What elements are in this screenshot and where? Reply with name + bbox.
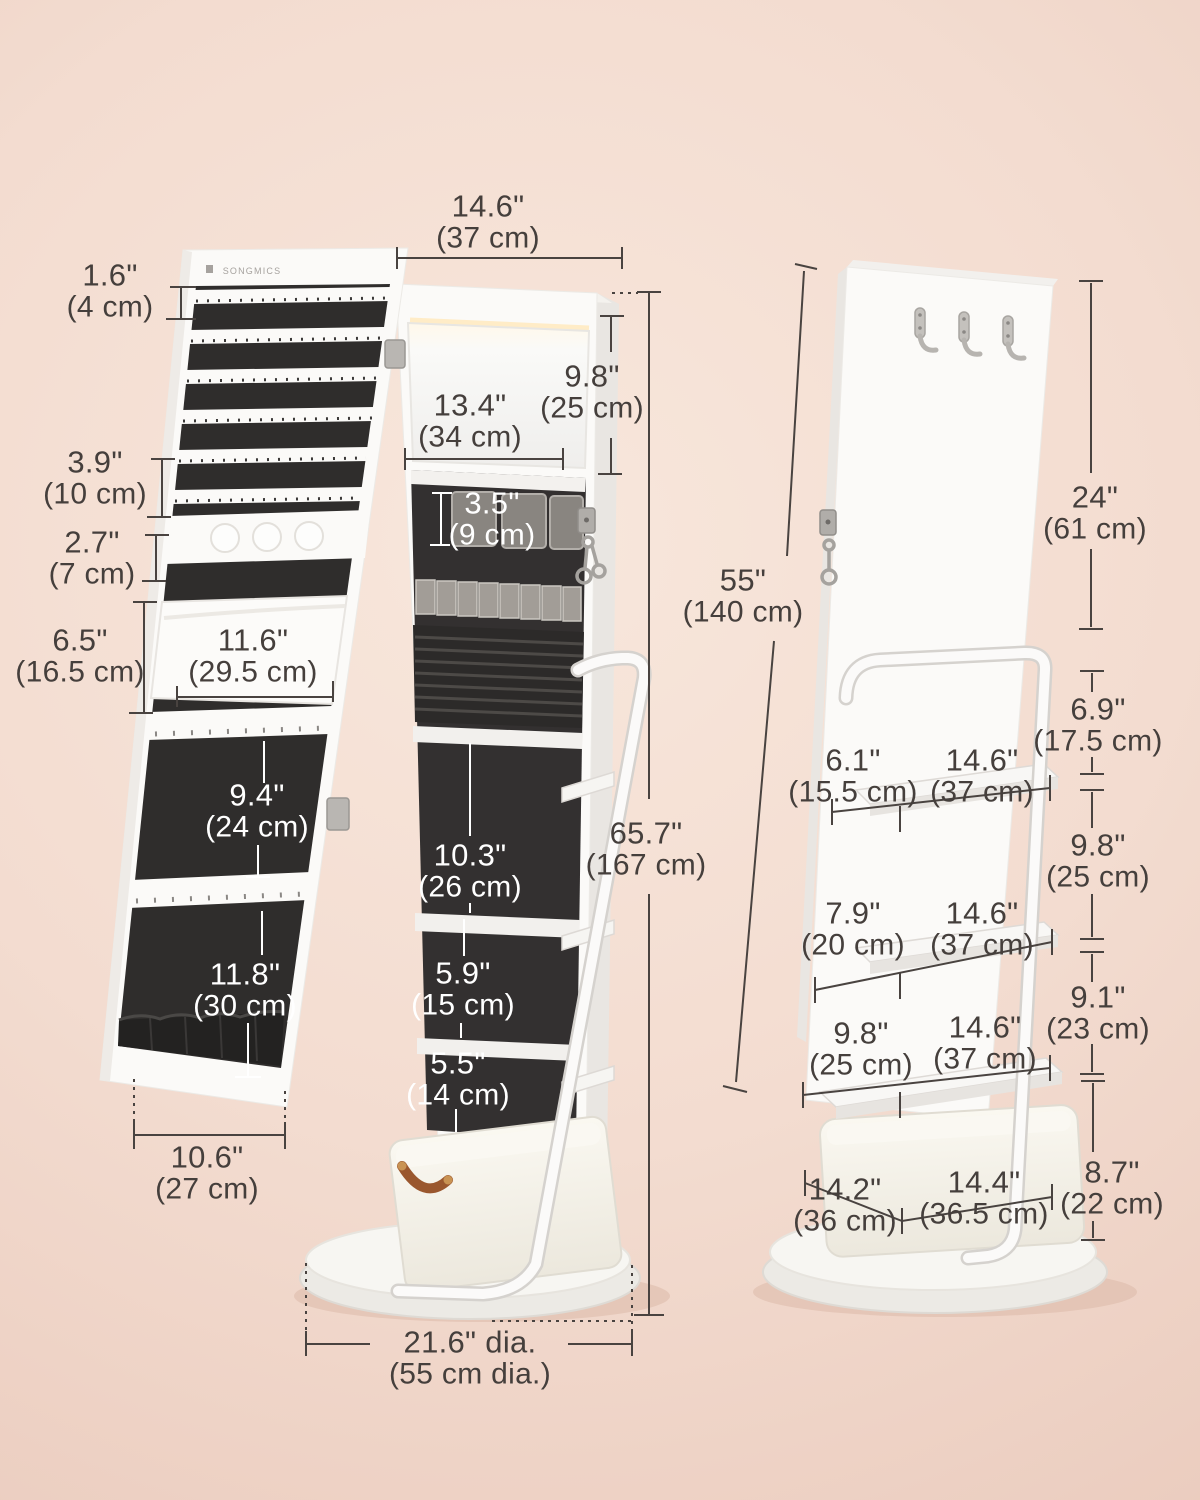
hinge-top — [385, 340, 405, 368]
dim-door-lower-panel-1: 9.4"(24 cm) — [205, 778, 309, 843]
dim-mirror-height: 9.8"(25 cm) — [540, 359, 644, 424]
dim-door-width: 10.6"(27 cm) — [155, 1140, 259, 1205]
dim-shelf-3-width: 14.6"(37 cm) — [933, 1010, 1037, 1075]
dim-shelf-1-depth: 6.1"(15.5 cm) — [788, 743, 917, 808]
dim-basket-height: 8.7"(22 cm) — [1060, 1155, 1164, 1220]
dim-interior-section-1: 10.3"(26 cm) — [418, 838, 522, 903]
dim-interior-section-3: 5.5"(14 cm) — [406, 1046, 510, 1111]
lock-icon — [578, 508, 595, 533]
dim-handle-to-shelf-gap: 6.9"(17.5 cm) — [1033, 692, 1162, 757]
product-dimension-diagram: SONGMICS — [0, 0, 1200, 1500]
dim-back-panel-height: 55"(140 cm) — [683, 563, 804, 628]
dim-door-hook-clearance: 3.9"(10 cm) — [43, 445, 147, 510]
dim-shelf-1-to-2-gap: 9.8"(25 cm) — [1046, 828, 1150, 893]
dim-shelf-1-width: 14.6"(37 cm) — [930, 743, 1034, 808]
dim-cabinet-width: 14.6"(37 cm) — [436, 189, 540, 254]
dim-shelf-2-to-3-gap: 9.1"(23 cm) — [1046, 980, 1150, 1045]
dim-interior-section-2: 5.9"(15 cm) — [411, 956, 515, 1021]
dim-shelf-3-depth: 9.8"(25 cm) — [809, 1016, 913, 1081]
dim-door-pocket-width: 11.6"(29.5 cm) — [188, 623, 317, 688]
dim-door-slot-spacing: 1.6"(4 cm) — [67, 258, 154, 323]
dim-shelf-2-depth: 7.9"(20 cm) — [801, 896, 905, 961]
dim-tray-height: 3.5"(9 cm) — [449, 486, 536, 551]
necklace-panel — [413, 625, 584, 728]
dim-base-diameter: 21.6" dia.(55 cm dia.) — [389, 1325, 551, 1390]
dim-total-height: 65.7"(167 cm) — [586, 816, 707, 881]
dim-door-lower-panel-2: 11.8"(30 cm) — [193, 957, 297, 1022]
divider-bins — [416, 580, 581, 621]
songmics-logo-mark — [206, 265, 213, 273]
back-panel — [797, 260, 1058, 1120]
dim-door-hook-row-height: 2.7"(7 cm) — [49, 525, 136, 590]
storage-basket — [388, 1115, 623, 1292]
dim-mirror-width: 13.4"(34 cm) — [418, 388, 522, 453]
hinge-bottom — [327, 798, 349, 830]
dim-basket-depth: 14.2"(36 cm) — [793, 1172, 897, 1237]
songmics-logo: SONGMICS — [223, 266, 282, 276]
back-lock-icon — [820, 510, 836, 535]
dim-door-pocket-height: 6.5"(16.5 cm) — [15, 623, 144, 688]
dimline-top-to-handle — [1079, 281, 1103, 629]
dim-basket-width: 14.4"(36.5 cm) — [919, 1165, 1048, 1230]
dim-top-to-handle: 24"(61 cm) — [1043, 480, 1147, 545]
scarf-knob-rail — [165, 510, 370, 564]
dimline-total-height — [634, 292, 664, 1315]
dim-shelf-2-width: 14.6"(37 cm) — [930, 896, 1034, 961]
